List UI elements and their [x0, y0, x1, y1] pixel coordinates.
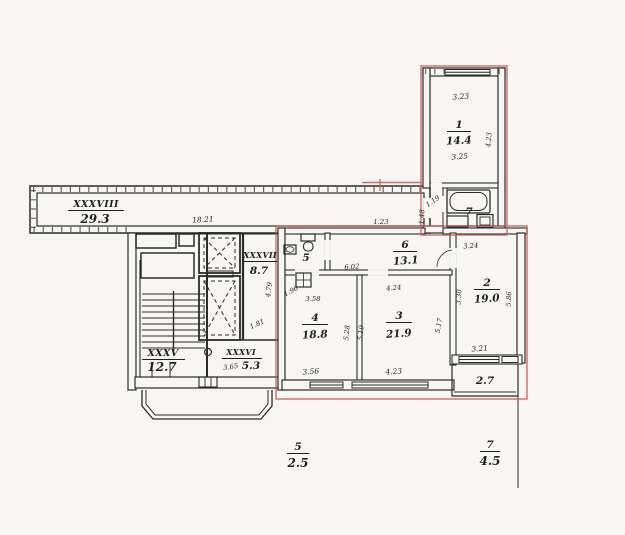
floor-plan-page: XXXVIII 29.3 18.21 1.23 XXXV 12.7 XXXVII…	[0, 0, 625, 535]
balcony7-area: 4.5	[480, 454, 501, 468]
liftroom-dim-door: 1.81	[249, 317, 266, 331]
toilet-icon	[301, 234, 315, 251]
room4-dim-side: 5.28	[342, 324, 352, 341]
room1-area: 14.4	[446, 134, 472, 147]
room4-window	[310, 382, 343, 388]
room2-window	[459, 357, 518, 363]
vestibule-dim-width: 3.65	[223, 362, 239, 372]
room1-door-gap	[431, 183, 442, 190]
corridor-area: 29.3	[79, 212, 109, 226]
room1-number: 1	[455, 119, 462, 131]
room2-dim-right: 5.86	[505, 290, 514, 306]
liftroom-area: 8.7	[250, 265, 269, 277]
room3-dim-left: 5.19	[356, 324, 366, 341]
vestibule-numeral: XXXVI	[225, 347, 256, 357]
vestibule-area: 5.3	[242, 360, 260, 372]
room3-area: 21.9	[385, 327, 413, 341]
room3-dim-bottom: 4.23	[384, 366, 403, 376]
hall-number: 6	[401, 239, 409, 251]
balcony5-area: 2.5	[287, 456, 309, 470]
hall-area: 13.1	[393, 254, 419, 268]
room4-area: 18.8	[302, 328, 329, 341]
room3-window	[352, 382, 428, 388]
corridor-dim-end: 1.23	[373, 218, 388, 226]
hall-dim-1: 1.19	[424, 193, 442, 209]
floor-plan-drawing: XXXVIII 29.3 18.21 1.23 XXXV 12.7 XXXVII…	[0, 0, 625, 535]
staircase-numeral: XXXV	[146, 348, 179, 359]
hall-dim-width: 6.02	[344, 262, 360, 271]
room3-number: 3	[395, 310, 402, 322]
room4-dim-bottom: 3.56	[302, 366, 320, 376]
wc-number: 5	[302, 252, 309, 264]
balcony5-number: 5	[294, 441, 301, 453]
liftroom-numeral: XXXVII	[242, 250, 277, 260]
room1-dim-side: 4.23	[484, 132, 493, 149]
room2-number: 2	[482, 277, 490, 289]
room1-dim-inner: 3.25	[451, 151, 469, 161]
room3-dim-right: 5.17	[434, 317, 445, 334]
elevator-shaft-2	[199, 271, 240, 340]
room1-dim-top: 3.23	[452, 91, 470, 101]
staircase-area: 12.7	[147, 360, 177, 374]
bathroom-number: 7	[465, 206, 473, 218]
hall-dim-2: 1.48	[418, 208, 427, 224]
room1-window	[445, 70, 490, 76]
room4-dim-top: 3.58	[305, 295, 321, 303]
balcony7-number: 7	[486, 439, 494, 451]
corridor-dim-length: 18.21	[192, 214, 214, 224]
room3-dim-top: 4.24	[385, 283, 402, 292]
room2-dim-left: 3.30	[455, 288, 464, 304]
balcony-right-area: 2.7	[475, 375, 495, 387]
room4-number: 4	[311, 312, 318, 324]
corridor-numeral: XXXVIII	[72, 199, 119, 210]
room2-dim-bottom: 3.21	[471, 343, 488, 353]
lobby-fixtures	[136, 234, 194, 278]
wc-sink-icon	[284, 245, 296, 254]
liftroom-dim-depth: 4.79	[264, 281, 274, 299]
room2-dim-top: 3.24	[463, 241, 479, 250]
room2-area: 19.0	[474, 292, 501, 306]
elevator-shaft-1	[199, 233, 240, 273]
